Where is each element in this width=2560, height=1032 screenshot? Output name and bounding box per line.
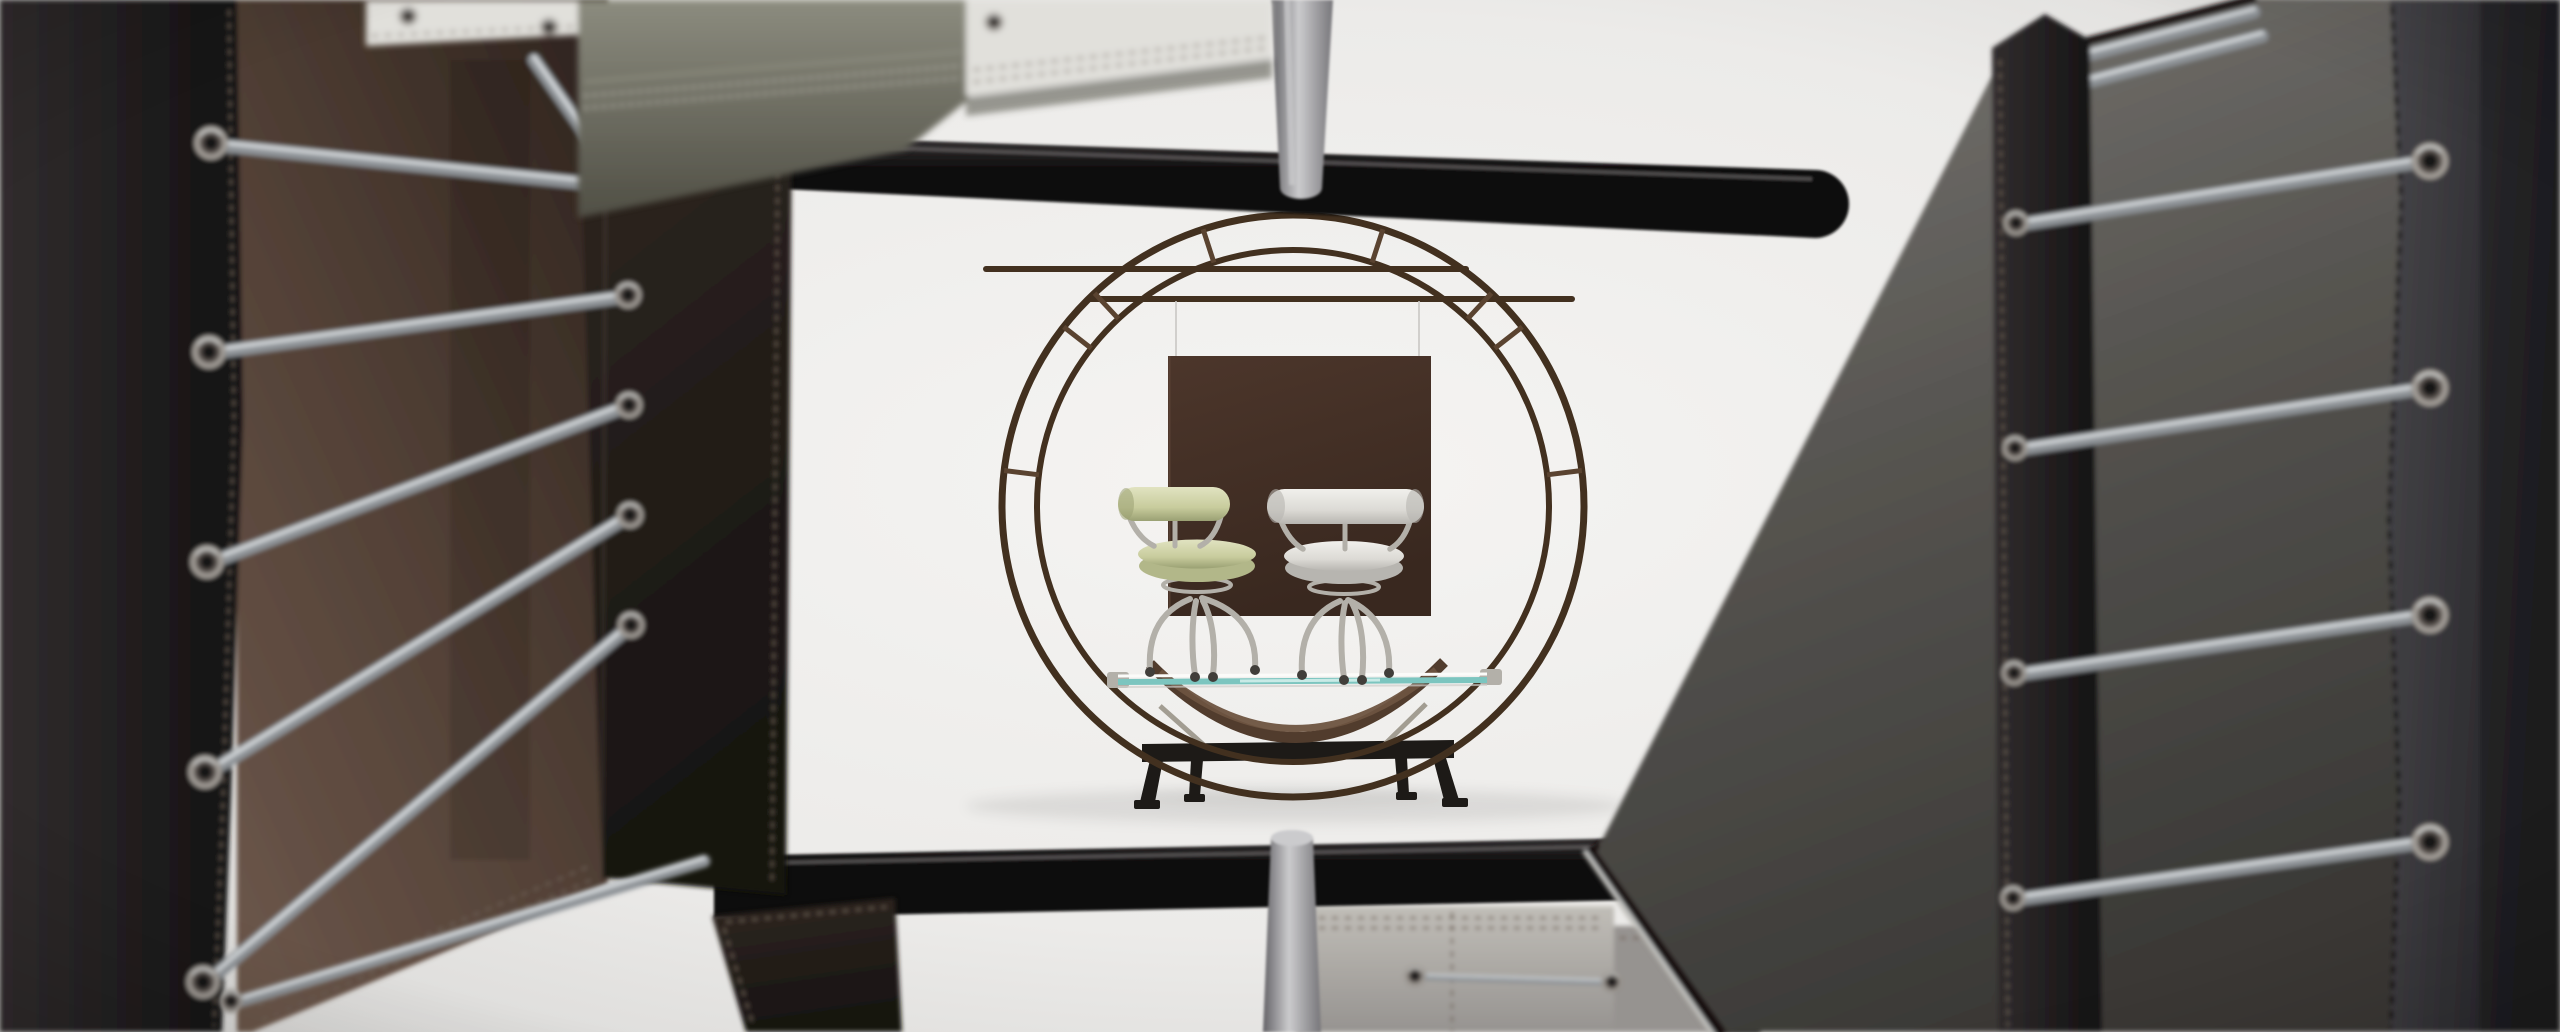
- photo-canvas: [0, 0, 2560, 1032]
- photograph: [0, 0, 2560, 1032]
- vignette-overlay: [0, 0, 2560, 1032]
